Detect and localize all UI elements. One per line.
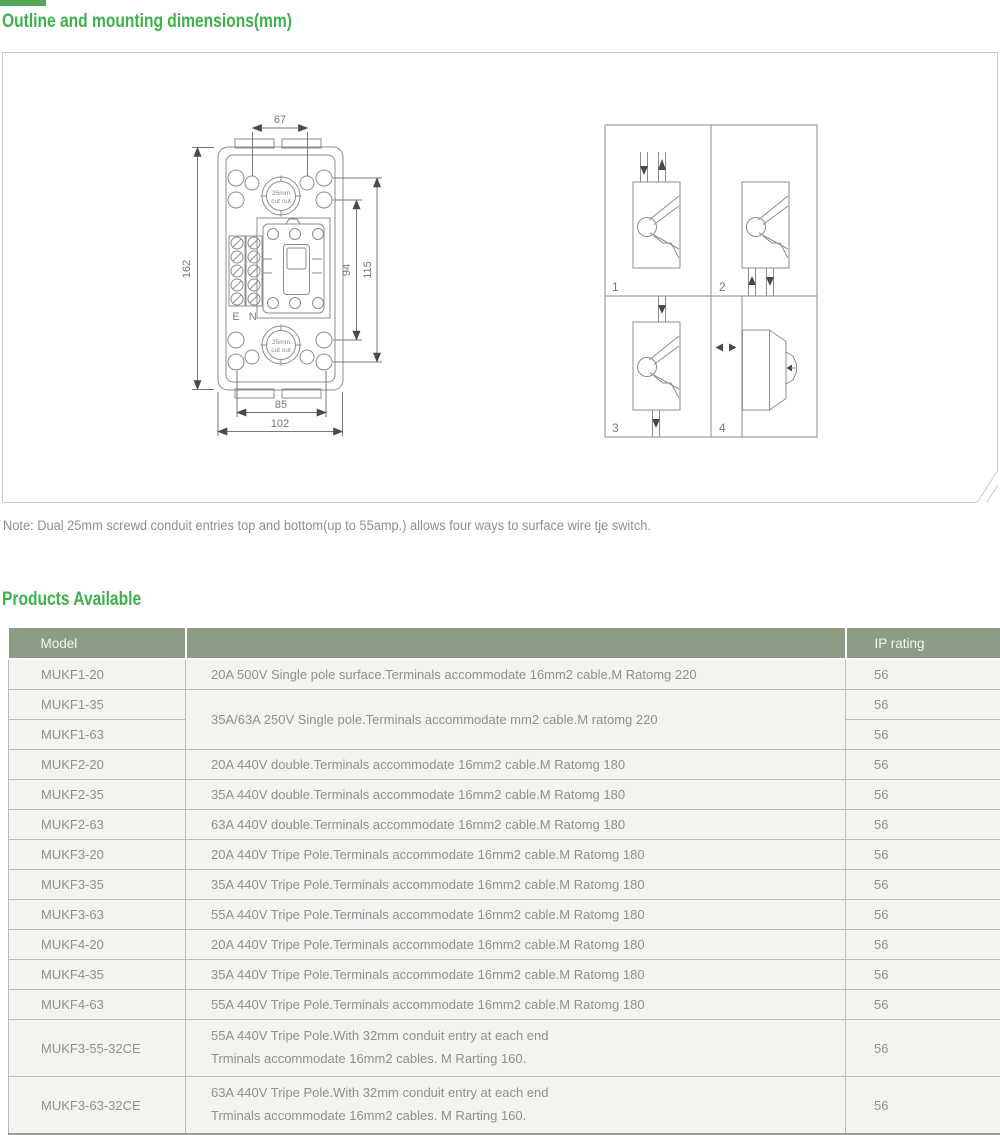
model-cell: MUKF2-35 bbox=[9, 780, 186, 810]
ip-rating-cell: 56 bbox=[846, 840, 1000, 870]
dimension-top-width: 67 bbox=[253, 114, 308, 176]
column-header-ip-rating: IP rating bbox=[846, 628, 1000, 659]
description-cell-merged: 35A/63A 250V Single pole.Terminals accom… bbox=[186, 690, 846, 750]
table-row: MUKF4-20 20A 440V Tripe Pole.Terminals a… bbox=[9, 930, 1000, 960]
orientation-2: 2 bbox=[719, 182, 789, 296]
cutout-label-top-1: 25mm bbox=[272, 190, 290, 197]
table-row: MUKF1-35 35A/63A 250V Single pole.Termin… bbox=[9, 690, 1000, 720]
datasheet-page: { "page": { "section1_title": "Outline a… bbox=[0, 0, 1000, 1117]
model-cell: MUKF3-55-32CE bbox=[9, 1020, 186, 1077]
description-cell: 20A 440V double.Terminals accommodate 16… bbox=[186, 750, 846, 780]
column-header-model: Model bbox=[9, 628, 186, 659]
mounting-orientations-drawing: 1 2 3 bbox=[605, 125, 817, 437]
ip-rating-cell: 56 bbox=[846, 1077, 1000, 1135]
model-cell: MUKF4-20 bbox=[9, 930, 186, 960]
orientation-4: 4 bbox=[716, 297, 797, 438]
description-cell: 20A 500V Single pole surface.Terminals a… bbox=[186, 659, 846, 690]
ip-rating-cell: 56 bbox=[846, 900, 1000, 930]
ip-rating-cell: 56 bbox=[846, 870, 1000, 900]
cable-clamp-glyph bbox=[638, 196, 680, 258]
orientation-label-3: 3 bbox=[612, 421, 619, 435]
switch-module bbox=[257, 218, 330, 318]
table-row: MUKF3-35 35A 440V Tripe Pole.Terminals a… bbox=[9, 870, 1000, 900]
model-cell: MUKF3-63-32CE bbox=[9, 1077, 186, 1135]
description-cell: 55A 440V Tripe Pole.Terminals accommodat… bbox=[186, 900, 846, 930]
ip-rating-cell: 56 bbox=[846, 690, 1000, 720]
panel-border bbox=[3, 53, 998, 503]
ip-rating-cell: 56 bbox=[846, 659, 1000, 690]
orientation-1: 1 bbox=[612, 152, 680, 294]
orientation-label-4: 4 bbox=[719, 421, 726, 435]
cutout-label-bottom-1: 25mm bbox=[272, 339, 290, 346]
dim-label-85: 85 bbox=[275, 399, 287, 411]
ip-rating-cell: 56 bbox=[846, 750, 1000, 780]
description-cell: 35A 440V double.Terminals accommodate 16… bbox=[186, 780, 846, 810]
dim-label-102: 102 bbox=[271, 418, 289, 430]
description-cell: 35A 440V Tripe Pole.Terminals accommodat… bbox=[186, 960, 846, 990]
model-cell: MUKF4-63 bbox=[9, 990, 186, 1020]
description-line-2: Trminals accommodate 16mm2 cables. M Rar… bbox=[211, 1105, 844, 1128]
table-header-row: Model IP rating bbox=[9, 628, 1000, 659]
note-text: Note: Dual 25mm screwd conduit entries t… bbox=[3, 518, 651, 533]
ip-rating-cell: 56 bbox=[846, 780, 1000, 810]
table-row: MUKF2-35 35A 440V double.Terminals accom… bbox=[9, 780, 1000, 810]
description-cell: 35A 440V Tripe Pole.Terminals accommodat… bbox=[186, 870, 846, 900]
model-cell: MUKF2-63 bbox=[9, 810, 186, 840]
table-row: MUKF1-20 20A 500V Single pole surface.Te… bbox=[9, 659, 1000, 690]
front-view-drawing: 25mm cut out 25mm cut out bbox=[181, 114, 382, 436]
model-cell: MUKF3-35 bbox=[9, 870, 186, 900]
description-line-1: 55A 440V Tripe Pole.With 32mm conduit en… bbox=[211, 1025, 844, 1048]
model-cell: MUKF2-20 bbox=[9, 750, 186, 780]
cutout-label-top-2: cut out bbox=[271, 198, 291, 205]
model-cell: MUKF3-20 bbox=[9, 840, 186, 870]
orientation-label-1: 1 bbox=[612, 280, 619, 294]
table-row: MUKF3-63 55A 440V Tripe Pole.Terminals a… bbox=[9, 900, 1000, 930]
description-line-1: 63A 440V Tripe Pole.With 32mm conduit en… bbox=[211, 1082, 844, 1105]
dim-label-162: 162 bbox=[181, 260, 193, 278]
orientation-3: 3 bbox=[612, 296, 680, 437]
table-row: MUKF2-20 20A 440V double.Terminals accom… bbox=[9, 750, 1000, 780]
ip-rating-cell: 56 bbox=[846, 810, 1000, 840]
ip-rating-cell: 56 bbox=[846, 1020, 1000, 1077]
table-row: MUKF3-63-32CE 63A 440V Tripe Pole.With 3… bbox=[9, 1077, 1000, 1135]
description-line-2: Trminals accommodate 16mm2 cables. M Rar… bbox=[211, 1048, 844, 1071]
description-cell: 20A 440V Tripe Pole.Terminals accommodat… bbox=[186, 930, 846, 960]
description-cell: 55A 440V Tripe Pole.Terminals accommodat… bbox=[186, 990, 846, 1020]
model-cell: MUKF1-35 bbox=[9, 690, 186, 720]
description-cell: 63A 440V double.Terminals accommodate 16… bbox=[186, 810, 846, 840]
ip-rating-cell: 56 bbox=[846, 960, 1000, 990]
ip-rating-cell: 56 bbox=[846, 930, 1000, 960]
dimension-left-height: 162 bbox=[181, 148, 214, 390]
dim-label-67: 67 bbox=[274, 114, 286, 126]
table-row: MUKF2-63 63A 440V double.Terminals accom… bbox=[9, 810, 1000, 840]
table-row: MUKF4-35 35A 440V Tripe Pole.Terminals a… bbox=[9, 960, 1000, 990]
model-cell: MUKF1-20 bbox=[9, 659, 186, 690]
model-cell: MUKF1-63 bbox=[9, 720, 186, 750]
section-title-products-available: Products Available bbox=[2, 589, 141, 611]
dim-label-94: 94 bbox=[341, 264, 353, 276]
model-cell: MUKF4-35 bbox=[9, 960, 186, 990]
orientation-label-2: 2 bbox=[719, 280, 726, 294]
column-header-description bbox=[186, 628, 846, 659]
dimension-right-inner: 94 bbox=[333, 200, 362, 340]
description-cell: 55A 440V Tripe Pole.With 32mm conduit en… bbox=[186, 1020, 846, 1077]
description-cell: 20A 440V Tripe Pole.Terminals accommodat… bbox=[186, 840, 846, 870]
cutout-bottom: 25mm cut out bbox=[261, 325, 302, 366]
ip-rating-cell: 56 bbox=[846, 990, 1000, 1020]
cutout-top: 25mm cut out bbox=[261, 176, 302, 217]
table-row: MUKF4-63 55A 440V Tripe Pole.Terminals a… bbox=[9, 990, 1000, 1020]
products-table: Model IP rating MUKF1-20 20A 500V Single… bbox=[8, 628, 1000, 1135]
description-cell: 63A 440V Tripe Pole.With 32mm conduit en… bbox=[186, 1077, 846, 1135]
cutout-label-bottom-2: cut out bbox=[271, 347, 291, 354]
terminals-label: E N bbox=[232, 311, 259, 323]
dim-label-115: 115 bbox=[362, 261, 374, 279]
model-cell: MUKF3-63 bbox=[9, 900, 186, 930]
table-row: MUKF3-20 20A 440V Tripe Pole.Terminals a… bbox=[9, 840, 1000, 870]
table-row: MUKF3-55-32CE 55A 440V Tripe Pole.With 3… bbox=[9, 1020, 1000, 1077]
ip-rating-cell: 56 bbox=[846, 720, 1000, 750]
